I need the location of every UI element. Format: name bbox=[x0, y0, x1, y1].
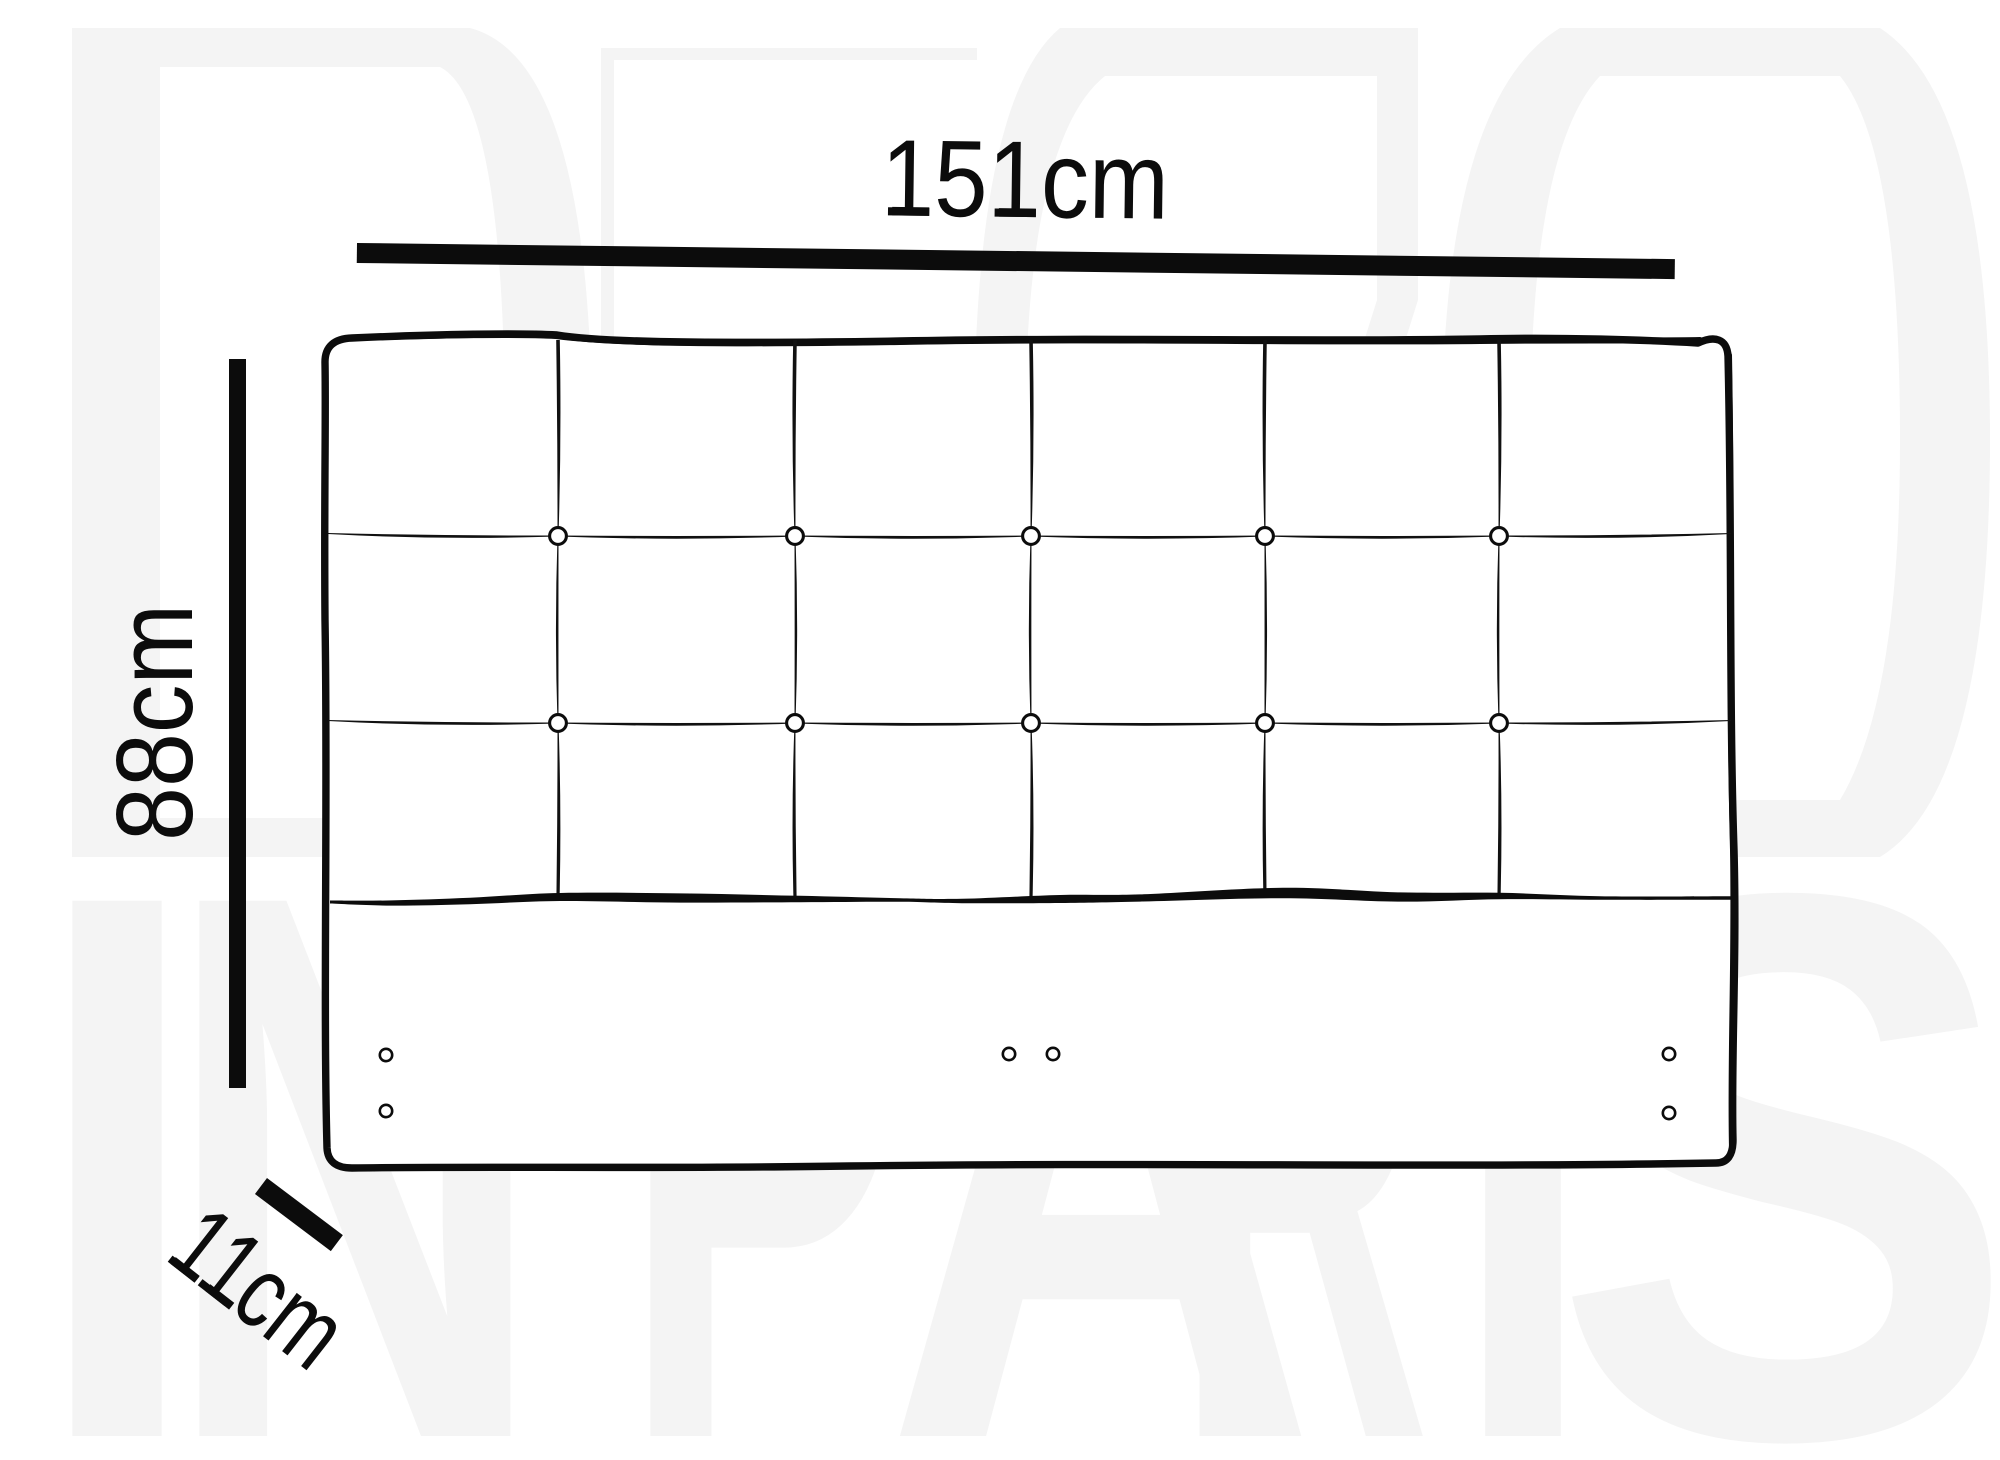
svg-text:151cm: 151cm bbox=[880, 117, 1169, 243]
svg-text:88cm: 88cm bbox=[94, 604, 215, 841]
